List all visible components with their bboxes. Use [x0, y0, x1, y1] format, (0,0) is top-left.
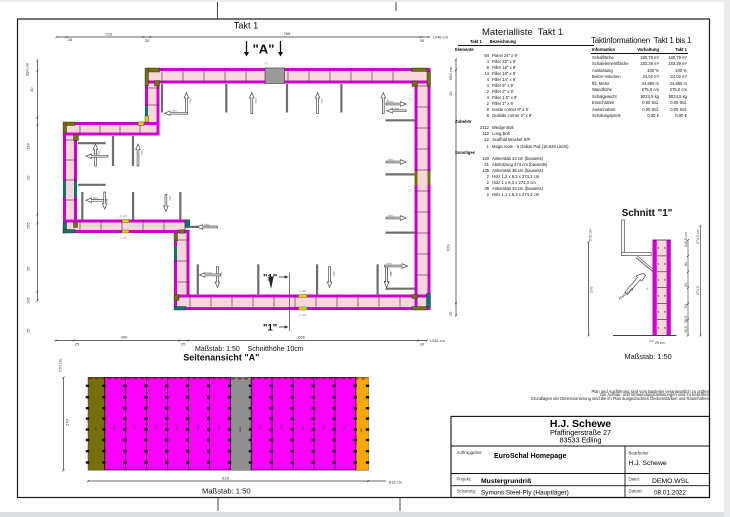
svg-text:666: 666: [298, 335, 305, 340]
svg-text:Abst: Abst: [189, 99, 193, 104]
svg-text:30: 30: [420, 38, 425, 43]
svg-text:Maßstab: 1:50: Maßstab: 1:50: [202, 487, 251, 496]
svg-text:24/9: 24/9: [196, 424, 200, 430]
svg-text:30: 30: [29, 87, 34, 92]
svg-text:Takt 1: Takt 1: [234, 21, 259, 31]
svg-text:"1": "1": [263, 323, 277, 334]
svg-text:Abst: Abst: [254, 99, 258, 104]
svg-text:Mustergrundriß: Mustergrundriß: [481, 478, 531, 485]
svg-text:24/9: 24/9: [280, 424, 284, 430]
svg-text:Schnitt "1": Schnitt "1": [622, 208, 673, 219]
svg-text:25: 25: [448, 311, 453, 316]
svg-text:1.125: 1.125: [299, 289, 306, 293]
svg-text:Abst: Abst: [168, 196, 172, 201]
svg-text:1.125: 1.125: [299, 313, 306, 317]
svg-text:Abst: Abst: [389, 272, 393, 277]
svg-text:Abst: Abst: [387, 262, 392, 266]
svg-text:Bearbeiter: Bearbeiter: [629, 451, 650, 456]
svg-text:134: 134: [26, 143, 31, 150]
svg-text:684 cm: 684 cm: [448, 66, 453, 80]
svg-text:216: 216: [106, 31, 113, 36]
svg-text:EuroSchal Homepage: EuroSchal Homepage: [494, 453, 566, 460]
svg-text:25: 25: [26, 266, 31, 271]
svg-text:Maßstab: 1:50: Maßstab: 1:50: [625, 352, 672, 361]
svg-text:Abst: Abst: [394, 106, 399, 110]
svg-text:83533 Edling: 83533 Edling: [560, 435, 602, 444]
svg-text:Abstützung: Abstützung: [618, 287, 634, 301]
svg-text:24/9: 24/9: [133, 424, 137, 430]
svg-text:var: var: [359, 428, 363, 432]
svg-text:390: 390: [121, 335, 128, 340]
svg-text:24/9: 24/9: [175, 424, 179, 430]
svg-text:Symons Steel-Ply (Hauptlager): Symons Steel-Ply (Hauptlager): [481, 490, 569, 497]
svg-text:Projekt:: Projekt:: [457, 476, 472, 481]
svg-text:24/9: 24/9: [259, 424, 263, 430]
svg-text:Abst: Abst: [140, 150, 144, 155]
svg-text:684 cm: 684 cm: [25, 62, 30, 76]
svg-text:08.01.2022: 08.01.2022: [654, 490, 686, 497]
svg-text:25: 25: [75, 341, 80, 346]
svg-text:Abst: Abst: [204, 223, 209, 227]
svg-text:Abst: Abst: [332, 272, 336, 277]
svg-text:H.J. Schewe: H.J. Schewe: [629, 460, 667, 467]
svg-text:270 cm: 270 cm: [589, 229, 593, 241]
svg-text:24/9: 24/9: [301, 424, 305, 430]
svg-text:30: 30: [420, 342, 425, 347]
svg-text:816 cm: 816 cm: [389, 480, 403, 485]
svg-text:30,5: 30,5: [684, 326, 688, 333]
svg-text:Abst: Abst: [93, 152, 98, 156]
svg-text:30: 30: [448, 91, 453, 96]
svg-text:Abst: Abst: [172, 109, 177, 113]
svg-text:20: 20: [145, 38, 150, 43]
svg-text:243,8 cm: 243,8 cm: [684, 232, 688, 247]
svg-text:Auftraggeber: Auftraggeber: [457, 450, 483, 455]
svg-text:24/9: 24/9: [154, 424, 158, 430]
svg-text:25 cm: 25 cm: [655, 341, 665, 345]
svg-text:Holz: Holz: [238, 426, 242, 432]
svg-text:1045 cm: 1045 cm: [430, 338, 446, 343]
svg-text:1046 cm: 1046 cm: [433, 35, 449, 40]
svg-text:24/9: 24/9: [342, 424, 346, 430]
svg-text:629: 629: [446, 244, 451, 251]
svg-text:61: 61: [684, 283, 688, 287]
svg-text:1.125: 1.125: [120, 214, 127, 218]
svg-text:Seitenansicht "A": Seitenansicht "A": [183, 353, 259, 363]
svg-text:Datei:: Datei:: [629, 476, 640, 481]
svg-text:7/8: 7/8: [264, 62, 268, 66]
svg-text:Abst: Abst: [388, 100, 393, 104]
svg-text:"A": "A": [253, 42, 275, 57]
svg-text:1 1/2: 1 1/2: [408, 186, 412, 193]
svg-text:61: 61: [684, 262, 688, 266]
svg-text:24/9: 24/9: [112, 424, 116, 430]
svg-text:274,3: 274,3: [696, 286, 700, 295]
svg-text:91: 91: [684, 304, 688, 308]
svg-text:1 1/2: 1 1/2: [409, 95, 413, 102]
svg-text:270 cm: 270 cm: [58, 358, 63, 372]
svg-text:Datum:: Datum:: [629, 488, 643, 493]
svg-text:Abst: Abst: [388, 158, 393, 162]
svg-text:20: 20: [26, 175, 31, 180]
svg-text:Abst: Abst: [320, 99, 324, 104]
svg-text:38,5: 38,5: [684, 316, 688, 323]
svg-text:Abst: Abst: [388, 214, 393, 218]
svg-text:25: 25: [26, 328, 31, 333]
svg-text:Schalung:: Schalung:: [457, 488, 477, 493]
svg-text:1.125: 1.125: [120, 236, 127, 240]
svg-text:var: var: [93, 427, 97, 431]
svg-text:24/9: 24/9: [217, 424, 221, 430]
svg-text:Abst: Abst: [207, 270, 212, 274]
svg-text:28: 28: [68, 37, 73, 42]
svg-text:Abst: Abst: [98, 150, 102, 155]
svg-text:25: 25: [181, 341, 186, 346]
svg-text:255: 255: [26, 222, 31, 229]
svg-text:195: 195: [26, 297, 31, 304]
svg-text:768: 768: [284, 31, 291, 36]
svg-text:274,3 cm: 274,3 cm: [696, 229, 700, 244]
svg-text:Abst: Abst: [93, 196, 98, 200]
svg-text:816: 816: [222, 476, 229, 481]
svg-text:DEMO.WSL: DEMO.WSL: [652, 478, 689, 485]
svg-text:270: 270: [590, 287, 594, 293]
svg-text:9': 9': [646, 287, 650, 290]
svg-text:270: 270: [65, 419, 70, 426]
svg-text:24/9: 24/9: [322, 424, 326, 430]
